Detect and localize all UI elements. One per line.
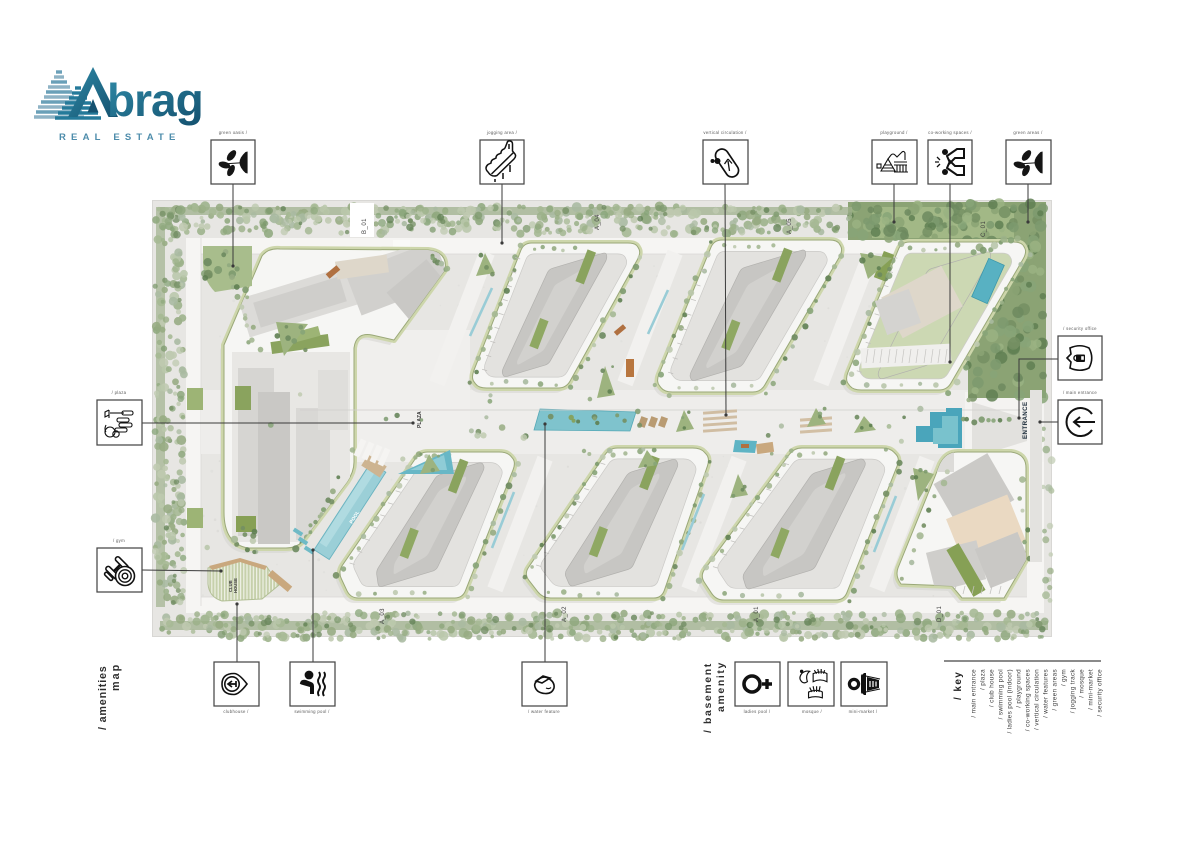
svg-text:/ jogging track: / jogging track (1070, 669, 1077, 714)
svg-text:HOUSE: HOUSE (233, 578, 238, 593)
svg-text:B_01: B_01 (362, 218, 368, 234)
svg-text:swimming pool /: swimming pool / (294, 709, 330, 714)
svg-text:/ plaza: / plaza (980, 669, 987, 690)
svg-text:ENTRANCE: ENTRANCE (1022, 401, 1029, 439)
svg-text:jogging area /: jogging area / (486, 130, 518, 135)
svg-text:/ vertical circulation: / vertical circulation (1034, 669, 1041, 730)
svg-text:/ playground: / playground (1016, 669, 1023, 708)
svg-text:/ mosque: / mosque (1079, 669, 1086, 698)
svg-text:green areas /: green areas / (1013, 130, 1043, 135)
svg-text:D_01: D_01 (937, 605, 943, 622)
svg-text:vertical circulation /: vertical circulation / (703, 130, 747, 135)
svg-text:playground /: playground / (880, 130, 908, 135)
svg-text:/ green areas: / green areas (1052, 669, 1059, 711)
svg-text:mosque /: mosque / (802, 709, 823, 714)
svg-text:brag: brag (107, 74, 203, 126)
svg-text:clubhouse /: clubhouse / (223, 709, 249, 714)
svg-text:/ security office: / security office (1097, 669, 1104, 717)
svg-text:/ amenities: / amenities (97, 665, 109, 730)
svg-text:A_03: A_03 (380, 608, 386, 624)
svg-text:/ mini-market: / mini-market (1088, 669, 1095, 710)
svg-text:/ swimming pool: / swimming pool (998, 669, 1005, 719)
svg-text:co-working spaces /: co-working spaces / (928, 130, 972, 135)
svg-text:A_01: A_01 (754, 606, 760, 622)
svg-text:green oasis /: green oasis / (219, 130, 248, 135)
svg-text:/ gym: / gym (113, 538, 125, 543)
svg-text:C_01: C_01 (981, 220, 987, 237)
svg-text:/ main entrance: / main entrance (971, 669, 978, 718)
svg-text:/ co-working spaces: / co-working spaces (1025, 669, 1032, 731)
svg-text:/ water features: / water features (1043, 669, 1050, 718)
svg-text:/ security office: / security office (1063, 326, 1097, 331)
svg-text:/ club house: / club house (989, 669, 996, 707)
svg-text:A_02: A_02 (562, 606, 568, 622)
svg-text:amenity: amenity (715, 661, 727, 712)
svg-text:map: map (110, 663, 122, 691)
svg-text:mini-market /: mini-market / (849, 709, 878, 714)
svg-text:A_05: A_05 (787, 218, 793, 234)
svg-text:/ water feature: / water feature (528, 709, 560, 714)
svg-text:/ key: / key (953, 671, 964, 700)
svg-text:/ ladies pool (indoor): / ladies pool (indoor) (1007, 669, 1014, 734)
svg-text:/ plaza: / plaza (112, 390, 127, 395)
svg-text:A_04: A_04 (595, 214, 601, 230)
svg-text:ladies pool /: ladies pool / (744, 709, 771, 714)
svg-text:/ basement: / basement (702, 662, 714, 733)
svg-text:/ gym: / gym (1061, 669, 1068, 686)
svg-text:REAL ESTATE: REAL ESTATE (59, 132, 181, 143)
svg-text:/ main entrance: / main entrance (1063, 390, 1097, 395)
